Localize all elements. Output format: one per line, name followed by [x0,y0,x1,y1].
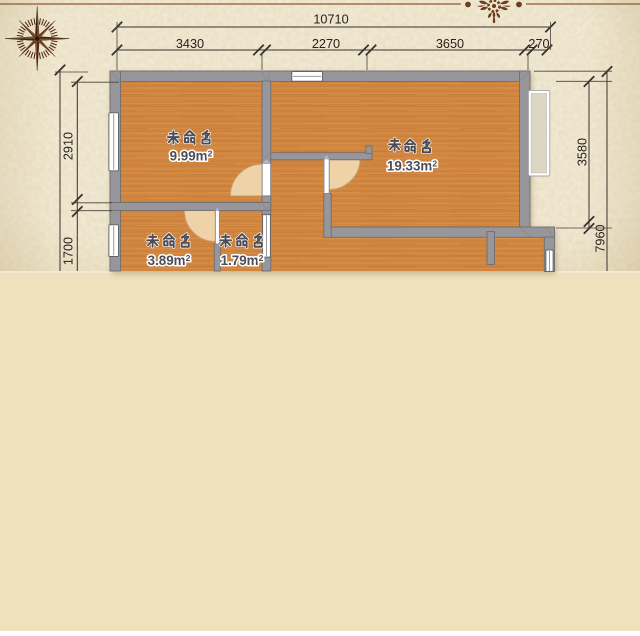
svg-text:3580: 3580 [576,138,590,166]
svg-text:1700: 1700 [62,237,76,265]
svg-text:2910: 2910 [62,132,76,160]
svg-text:3430: 3430 [176,37,204,51]
svg-text:19.33m2: 19.33m2 [387,158,437,173]
svg-text:10710: 10710 [313,13,348,27]
svg-text:270: 270 [528,37,549,51]
svg-text:2270: 2270 [312,37,340,51]
svg-text:3650: 3650 [436,37,464,51]
svg-text:3.89m2: 3.89m2 [148,253,191,268]
svg-text:7960: 7960 [594,224,608,252]
svg-text:9.99m2: 9.99m2 [170,148,213,163]
svg-text:1.79m2: 1.79m2 [221,253,264,268]
